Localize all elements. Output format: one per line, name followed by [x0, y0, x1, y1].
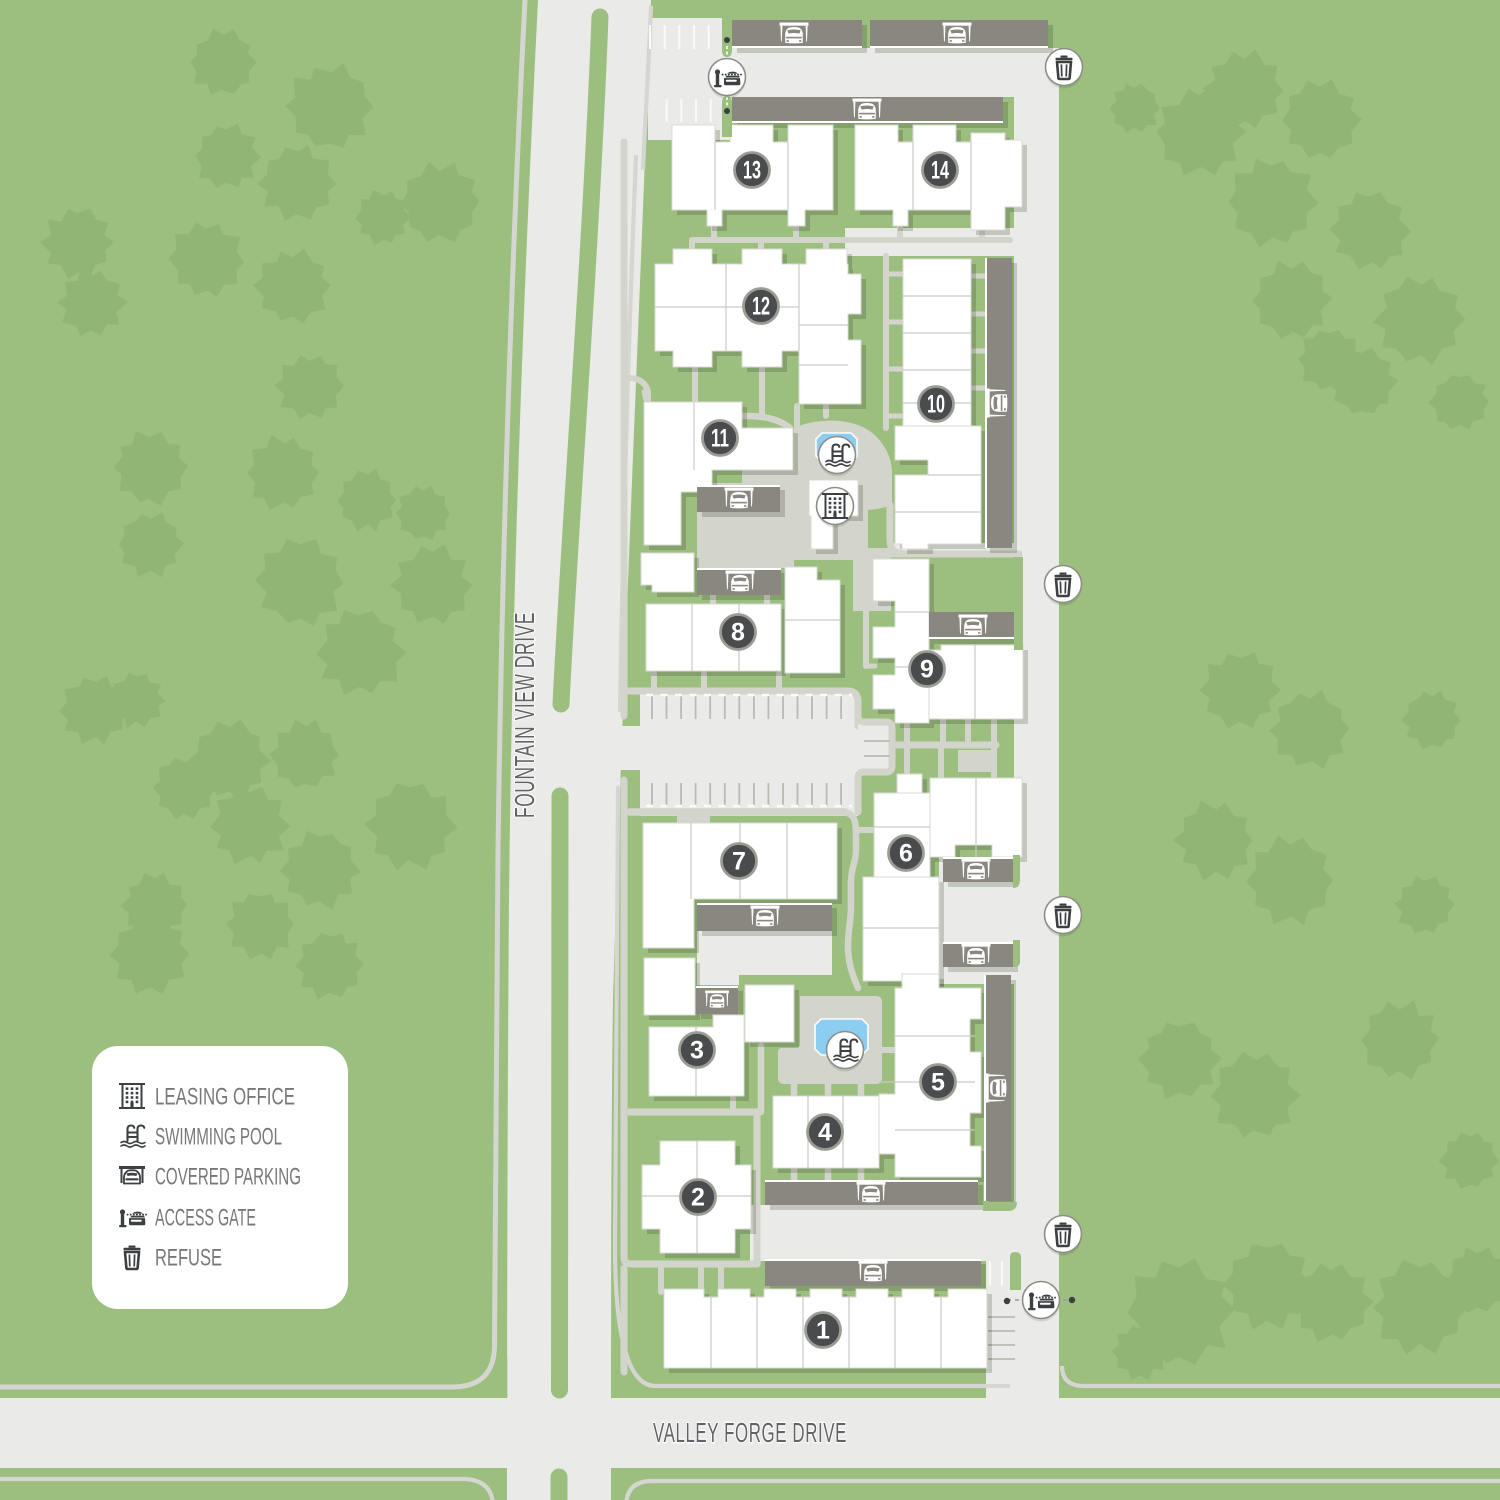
- svg-text:REFUSE: REFUSE: [155, 1245, 222, 1272]
- svg-text:12: 12: [752, 293, 770, 321]
- svg-text:14: 14: [931, 157, 949, 185]
- svg-text:SWIMMING POOL: SWIMMING POOL: [155, 1124, 282, 1151]
- svg-text:ACCESS GATE: ACCESS GATE: [155, 1205, 256, 1232]
- svg-text:5: 5: [931, 1069, 945, 1097]
- svg-text:6: 6: [899, 840, 913, 868]
- svg-text:2: 2: [691, 1184, 705, 1212]
- svg-text:9: 9: [920, 656, 934, 684]
- svg-text:VALLEY FORGE DRIVE: VALLEY FORGE DRIVE: [653, 1417, 847, 1448]
- svg-text:COVERED PARKING: COVERED PARKING: [155, 1164, 301, 1191]
- svg-text:8: 8: [731, 619, 745, 647]
- svg-text:FOUNTAIN VIEW DRIVE: FOUNTAIN VIEW DRIVE: [509, 612, 540, 818]
- svg-text:11: 11: [711, 425, 729, 453]
- svg-text:4: 4: [818, 1119, 832, 1147]
- svg-text:7: 7: [732, 848, 746, 876]
- svg-text:1: 1: [816, 1317, 830, 1345]
- svg-text:LEASING OFFICE: LEASING OFFICE: [155, 1084, 295, 1111]
- svg-text:13: 13: [743, 157, 761, 185]
- svg-text:3: 3: [690, 1037, 704, 1065]
- svg-text:10: 10: [927, 391, 945, 419]
